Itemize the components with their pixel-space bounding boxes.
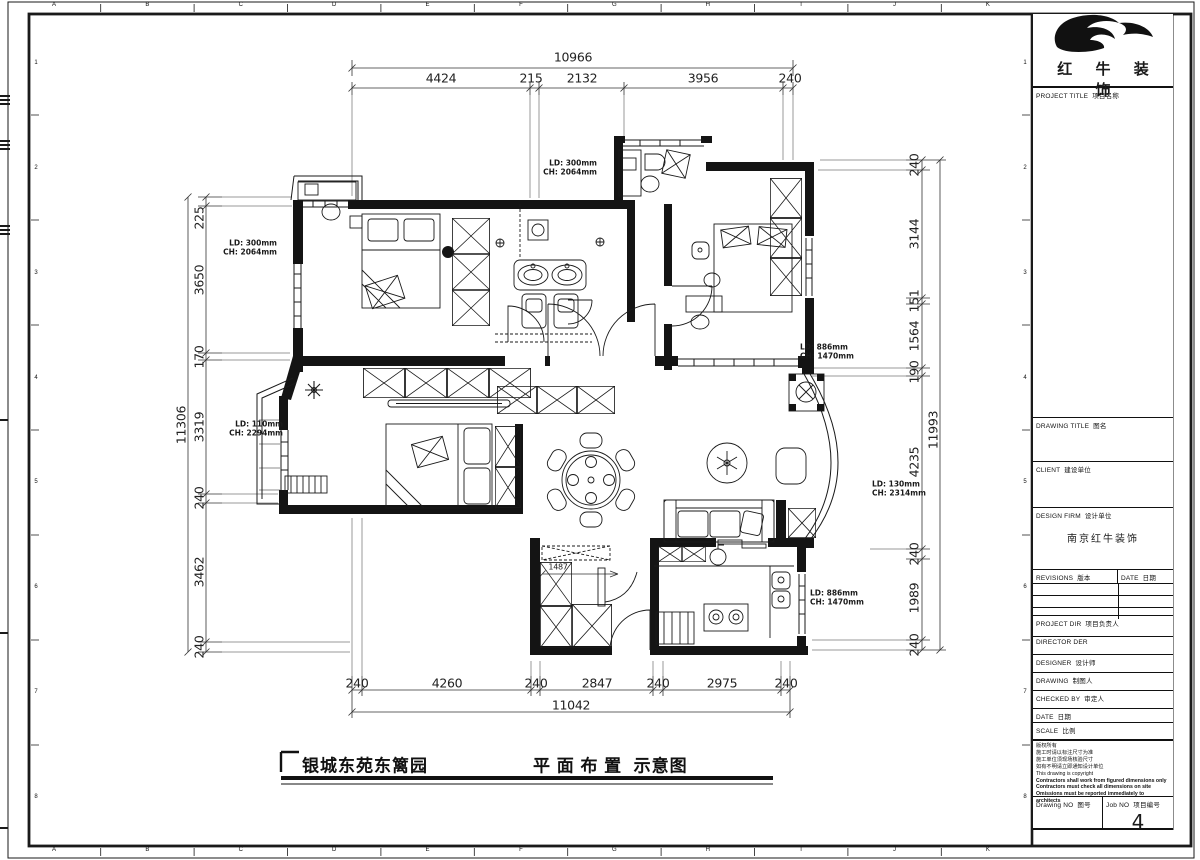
rednull-swoosh-icon xyxy=(1043,14,1163,52)
dim-right-seg: 1564 xyxy=(907,321,922,352)
director-row: DIRECTOR DER xyxy=(1033,637,1173,655)
dim-left-seg: 240 xyxy=(192,636,207,659)
project-title-section: PROJECT TITLE 项目名称 xyxy=(1033,88,1173,418)
title-block: 红 牛 装 饰 PROJECT TITLE 项目名称 DRAWING TITLE… xyxy=(1033,14,1173,830)
dim-bottom-seg: 2975 xyxy=(707,676,738,691)
walls xyxy=(279,136,814,655)
dim-right-seg: 240 xyxy=(907,634,922,657)
drawing-name-title: 平 面 布 置 示意图 xyxy=(533,752,688,777)
window-label-bay-upper: LD: 886mmCH: 1470mm xyxy=(800,343,854,360)
dim-bottom-seg: 240 xyxy=(647,676,670,691)
window-label-master: LD: 300mmCH: 2064mm xyxy=(223,239,277,256)
dim-left-seg: 3462 xyxy=(192,557,207,588)
dim-bottom-total: 11042 xyxy=(552,698,590,713)
design-firm-section: DESIGN FIRM 设计单位 南京红牛装饰 xyxy=(1033,508,1173,570)
dim-bottom-seg: 240 xyxy=(525,676,548,691)
window-label-study: LD: 300mmCH: 2064mm xyxy=(543,159,597,176)
revision-row xyxy=(1033,595,1173,607)
grid-numbers-right: 12345678 xyxy=(1020,60,1030,800)
dim-right-seg: 240 xyxy=(907,543,922,566)
dim-right-seg: 4235 xyxy=(907,447,922,478)
grid-letters-bottom: ABCDEFGHIJK xyxy=(49,847,993,853)
drawing-row: DRAWING 制图人 xyxy=(1033,673,1173,691)
client-section: CLIENT 建设单位 xyxy=(1033,462,1173,508)
dim-left-seg: 3650 xyxy=(192,265,207,296)
dim-right-seg: 3144 xyxy=(907,219,922,250)
dim-right-seg: 151 xyxy=(907,290,922,313)
dim-right-seg: 190 xyxy=(907,361,922,384)
window-label-curved-bay: LD: 130mmCH: 2314mm xyxy=(872,480,926,497)
design-firm-name: 南京红牛装饰 xyxy=(1033,530,1173,545)
grid-letters-top: ABCDEFGHIJK xyxy=(49,2,993,8)
dim-top-seg: 2132 xyxy=(567,71,598,86)
job-number: 4 xyxy=(1103,810,1173,834)
dim-left-seg: 170 xyxy=(192,346,207,369)
floor-plan-sheet: ABCDEFGHIJK ABCDEFGHIJK 12345678 1234567… xyxy=(0,0,1200,860)
dim-top-total: 10966 xyxy=(554,50,592,65)
dim-right-seg: 1989 xyxy=(907,583,922,614)
window-label-kitchen: LD: 886mmCH: 1470mm xyxy=(810,589,864,606)
drawing-title-section: DRAWING TITLE 图名 xyxy=(1033,418,1173,462)
dim-right-seg: 240 xyxy=(907,154,922,177)
designer-row: DESIGNER 设计师 xyxy=(1033,655,1173,673)
scale-row: SCALE 比例 xyxy=(1033,723,1173,741)
dim-bottom-seg: 240 xyxy=(775,676,798,691)
notes-section: 版权所有 施工时请以标注尺寸为准 施工单位须现场核验尺寸 如有不明请立即通知设计… xyxy=(1033,741,1173,797)
dim-top-seg: 3956 xyxy=(688,71,719,86)
dim-left-seg: 225 xyxy=(192,207,207,230)
windows xyxy=(257,140,838,634)
dim-right-total: 11993 xyxy=(926,411,941,449)
window-label-bedroom2: LD: 110mmCH: 2294mm xyxy=(229,420,283,437)
grid-numbers-left: 12345678 xyxy=(31,60,41,800)
date-row: DATE 日期 xyxy=(1033,709,1173,723)
company-logo: 红 牛 装 饰 xyxy=(1033,14,1173,88)
dim-bottom-seg: 240 xyxy=(346,676,369,691)
dim-closet-width: 1487 xyxy=(548,563,567,572)
dim-top-seg: 240 xyxy=(779,71,802,86)
project-dir-row: PROJECT DIR 项目负责人 xyxy=(1033,616,1173,637)
dim-top-seg: 215 xyxy=(520,71,543,86)
revisions-table: REVISIONS 版本 DATE 日期 xyxy=(1033,570,1173,616)
dim-left-total: 11306 xyxy=(174,406,189,444)
checked-by-row: CHECKED BY 审定人 xyxy=(1033,691,1173,709)
dim-left-seg: 240 xyxy=(192,487,207,510)
project-name-title: 银城东苑东篱园 xyxy=(302,752,428,777)
dim-bottom-seg: 4260 xyxy=(432,676,463,691)
dim-top-seg: 4424 xyxy=(426,71,457,86)
dim-bottom-seg: 2847 xyxy=(582,676,613,691)
dim-left-seg: 3319 xyxy=(192,412,207,443)
revision-row xyxy=(1033,583,1173,595)
furniture xyxy=(285,150,824,648)
